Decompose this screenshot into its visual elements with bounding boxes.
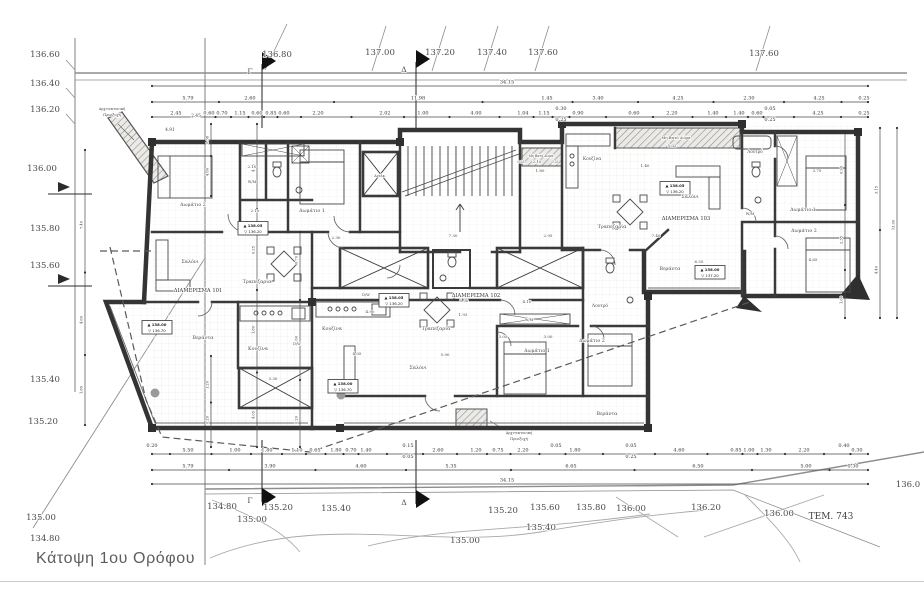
contour-label: 135.00 [26, 513, 56, 523]
plan-dim-label: 3.05 [499, 334, 508, 339]
dim-label: 1.04 [517, 111, 528, 117]
dim-label-vertical: 1.00 [840, 295, 844, 304]
contour-label: 135.60 [530, 503, 560, 513]
dim-label: 1.80 [261, 448, 272, 454]
section-flag-delta-top [416, 50, 430, 130]
dim-label: 0.25 [858, 96, 869, 102]
note-label: Αρχιτεκτονική [98, 107, 126, 111]
dim-label: 0.05 [625, 443, 636, 449]
room-label: Δωμάτιο 1 [299, 207, 325, 214]
level-marker: ▲ 138.00▽ 136.70 [328, 380, 358, 394]
level-lower-value: ▽ 136.20 [385, 301, 403, 306]
dim-label: 2.20 [517, 448, 528, 454]
dim-label: 1.30 [760, 448, 771, 454]
contour-label: 134.80 [30, 534, 60, 544]
dim-label: 2.20 [312, 111, 323, 117]
plan-dim-label: 4.90 [366, 309, 375, 314]
level-lower-value: ▽ 136.70 [148, 328, 166, 333]
contour-label: 136.40 [30, 79, 60, 89]
room-label: Βεράντα [660, 265, 682, 272]
room-label: Λουτρό [591, 304, 608, 309]
level-upper-value: ▲ 138.05 [666, 183, 685, 188]
dim-label: 0.60 [628, 111, 639, 117]
dim-label: 0.85 [730, 448, 741, 454]
level-upper-value: ▲ 138.05 [244, 223, 263, 228]
dim-label: 0.30 [847, 464, 858, 470]
dim-label: 0.30 [555, 106, 566, 112]
apartment-label: ΔΙΑΜΕΡΙΣΜΑ 103 [662, 216, 710, 222]
dim-label: 1.40 [360, 448, 371, 454]
dim-label: 1.80 [569, 448, 580, 454]
dim-label: 4.60 [355, 464, 366, 470]
level-upper-value: ▲ 138.05 [385, 295, 404, 300]
contour-label: 135.40 [30, 375, 60, 385]
contour-label: 135.00 [237, 515, 267, 525]
dim-label: 1.00 [417, 111, 428, 117]
room-label: W/M [248, 180, 257, 184]
dim-label: 2.60 [432, 448, 443, 454]
contour-label: 135.60 [30, 261, 60, 271]
dim-label-vertical: 0.20 [295, 415, 299, 424]
plan-dim-label: 1.80 [536, 168, 545, 173]
dim-label: 0.25 [764, 117, 775, 123]
dim-label: 1.15 [234, 111, 245, 117]
dim-label: 4.25 [672, 96, 683, 102]
plan-dim-label: 3.75 [813, 168, 822, 173]
dim-label: 0.65 [309, 448, 320, 454]
room-label: Μη Βατό Δώμα [661, 135, 691, 140]
dim-label: 1.10 [291, 448, 302, 454]
note-label: Αρχιτεκτονική [505, 431, 533, 435]
floor-plan-drawing: 34.155.792.6011.981.453.404.252.304.250.… [0, 0, 924, 597]
dim-label: 5.35 [445, 464, 456, 470]
dim-label: 0.60 [203, 111, 214, 117]
plan-dim-label: 4.91 [165, 128, 175, 133]
room-label: Σαλόνι [681, 193, 698, 200]
contour-label: 136.20 [691, 503, 721, 513]
dim-label: 1.40 [733, 111, 744, 117]
contour-label: 135.40 [526, 523, 556, 533]
contour-label: 136.0 [896, 480, 920, 490]
room-label: Τραπεζαρία [243, 278, 272, 285]
dim-label: 0.40 [838, 443, 849, 449]
dim-label: 6.65 [565, 464, 576, 470]
room-label: Κουζίνα [322, 325, 343, 332]
dim-label: 6.50 [692, 464, 703, 470]
contour-label: 137.00 [365, 48, 395, 58]
floor-plan-page: { "meta": {"title": "Κάτοψη 1ου Ορόφου"}… [0, 0, 924, 597]
level-marker: ▲ 138.05▽ 136.20 [238, 222, 268, 236]
contour-label: 136.00 [616, 504, 646, 514]
dim-label: 0.15 [402, 443, 413, 449]
room-label: Μη Βατό Δώμα [529, 154, 554, 158]
dim-label: 1.45 [541, 96, 552, 102]
dim-label: 0.20 [146, 443, 157, 449]
room-label: Δωμάτιο 2 [180, 201, 206, 208]
plan-dim-label: 1.40 [641, 163, 650, 168]
dim-label: 0.60 [278, 111, 289, 117]
room-label: Δωμάτιο 2 [579, 337, 605, 344]
contour-label: 137.40 [477, 48, 507, 58]
plan-dim-label: 0.25 [551, 160, 558, 164]
room-label: Βεράντα [193, 334, 215, 341]
dim-label: 5.79 [182, 96, 193, 102]
vdim-right-b: 3.154.40 [875, 127, 882, 319]
plan-dim-label: 3.30 [269, 376, 278, 381]
contour-label: 136.00 [764, 509, 794, 519]
contour-label: 137.60 [528, 48, 558, 58]
level-upper-value: ▲ 138.00 [701, 267, 720, 272]
dim-label: 0.25 [555, 117, 566, 123]
plan-dim-label: 1.93 [459, 312, 468, 317]
dim-label: 1.20 [470, 448, 481, 454]
dim-label: 0.90 [572, 111, 583, 117]
dim-label: 0.25 [858, 111, 869, 117]
plan-dim-label: 2.30 [332, 235, 341, 240]
section-flag-letter: Δ [401, 498, 407, 507]
dim-label: 4.25 [813, 96, 824, 102]
dim-label: 34.15 [500, 80, 514, 86]
dim-label: 2.02 [379, 111, 390, 117]
dim-label: 11.98 [411, 96, 425, 102]
contour-label: 137.20 [425, 48, 455, 58]
room-label: D/W [362, 293, 370, 297]
level-lower-value: ▽ 136.70 [334, 387, 352, 392]
dim-label-vertical: 0.90 [840, 165, 844, 174]
room-label: Δωμάτιο 2 [791, 227, 817, 234]
drawing-title: Κάτοψη 1ου Ορόφου [36, 550, 195, 568]
room-label: Ανελκ. [373, 174, 386, 178]
level-marker: ▲ 138.05▽ 136.20 [379, 294, 409, 308]
dim-label: 0.70 [216, 111, 227, 117]
plan-dim-label: 7.30 [449, 233, 458, 238]
plan-dim-label: 4.65 [809, 257, 818, 262]
dim-label: 0.85 [265, 111, 276, 117]
plan-dim-label: 2.95 [544, 233, 553, 238]
dim-label: 1.15 [538, 111, 549, 117]
dim-label-vertical: 1.80 [252, 325, 256, 334]
footer-divider [0, 581, 924, 582]
dim-label: 0.05 [764, 106, 775, 112]
contour-label: 136.80 [262, 50, 292, 60]
note-label: Προεξοχή [510, 437, 528, 441]
room-label: D/W [293, 342, 301, 346]
dim-label-vertical: 0.25 [252, 245, 256, 254]
top-dim-overall: 34.15 [151, 80, 869, 88]
dim-label-vertical: 1.80 [80, 385, 84, 394]
contour-label: 135.40 [321, 504, 351, 514]
plan-dim-label: 2.45 [191, 114, 201, 119]
dim-label: 4.60 [673, 448, 684, 454]
dim-label: 0.75 [492, 448, 503, 454]
contour-label: 135.20 [263, 503, 293, 513]
room-label: W/M [525, 318, 534, 322]
vdim-right-c: 13.90 [892, 127, 899, 319]
top-dim-row-3: 2.450.600.701.150.600.850.602.202.021.00… [151, 106, 870, 123]
dim-label: 0.25 [625, 454, 636, 460]
dim-label: 0.05 [402, 454, 413, 460]
dim-label: 0.60 [751, 111, 762, 117]
contour-label: 136.60 [30, 50, 60, 60]
section-flag-delta-bottom [416, 440, 430, 508]
dim-label-vertical: 4.60 [80, 315, 84, 324]
dim-label: 2.45 [170, 111, 181, 117]
dim-label-vertical: 13.90 [892, 219, 896, 230]
contour-label: 135.80 [30, 224, 60, 234]
dim-label: 1.00 [229, 448, 240, 454]
dim-label: 4.25 [812, 111, 823, 117]
dim-label: 3.90 [264, 464, 275, 470]
note-label: Προεξοχή [103, 113, 121, 117]
contour-label: 135.20 [28, 417, 58, 427]
plan-dim-label: 5.00 [460, 298, 469, 303]
level-lower-value: ▽ 136.20 [244, 229, 262, 234]
dim-label: 2.20 [666, 111, 677, 117]
bottom-dim-overall: 34.15 [151, 478, 869, 486]
dim-label-vertical: 1.20 [206, 380, 210, 389]
dim-label: 1.00 [743, 448, 754, 454]
dim-label: 0.30 [851, 448, 862, 454]
level-upper-value: ▲ 138.00 [148, 322, 167, 327]
dim-label-vertical: 4.05 [252, 410, 256, 419]
room-label: Δωμάτιο 1 [524, 347, 550, 354]
dim-label-vertical: 3.15 [875, 185, 879, 194]
dim-label: 0.05 [550, 443, 561, 449]
room-label: Δωμάτιο 1 [790, 206, 816, 213]
level-lower-value: ▽ 136.20 [666, 189, 684, 194]
dim-label: 5.00 [800, 464, 811, 470]
section-flag-letter: Δ [401, 65, 407, 74]
contour-label: 136.00 [27, 164, 57, 174]
plan-dim-label: 5.90 [441, 352, 450, 357]
contour-label: 135.20 [488, 506, 518, 516]
plan-dim-label: 4.10 [523, 299, 532, 304]
contour-label: 134.80 [207, 502, 237, 512]
dim-label-vertical: 4.40 [875, 265, 879, 274]
level-upper-value: ▲ 138.00 [334, 381, 353, 386]
dim-label: 1.80 [330, 448, 341, 454]
contour-label: 135.00 [450, 536, 480, 546]
dim-label: 5.50 [182, 448, 193, 454]
dim-label: 3.40 [592, 96, 603, 102]
plan-dim-label: 2.10 [251, 208, 260, 213]
room-label: Τραπεζαρία [422, 325, 451, 332]
dim-label-vertical: 0.20 [206, 415, 210, 424]
dim-label: 2.30 [743, 96, 754, 102]
section-flag-letter: Γ [247, 67, 252, 76]
dim-label-vertical: 4.60 [206, 167, 210, 176]
plan-dim-label: 7.40 [652, 233, 661, 238]
plan-dim-label: 6.55 [695, 259, 704, 264]
room-label: W/M [746, 212, 755, 216]
plan-dim-label: 2.10 [533, 159, 542, 164]
apartment-label: ΔΙΑΜΕΡΙΣΜΑ 101 [174, 288, 222, 294]
dim-label: 0.60 [251, 111, 262, 117]
contour-label: 137.60 [749, 49, 779, 59]
parcel-label: ΤΕΜ. 743 [809, 512, 854, 522]
dim-label: 34.15 [500, 478, 514, 484]
dim-label-vertical: 0.38 [206, 135, 210, 144]
dim-label: 5.79 [182, 464, 193, 470]
dim-label-vertical: 2.35 [840, 235, 844, 244]
room-label: Σαλόνι [181, 258, 198, 265]
plan-dim-label: 3.00 [544, 334, 553, 339]
bottom-dim-row-1: 0.205.501.001.801.100.651.800.701.400.15… [146, 443, 869, 460]
contour-label: 135.80 [576, 503, 606, 513]
dim-label: 1.40 [707, 111, 718, 117]
room-label: Τραπεζαρία [598, 223, 627, 230]
level-marker: ▲ 138.00▽ 137.20 [695, 266, 725, 280]
contour-label: 136.20 [30, 105, 60, 115]
section-flag-letter: Γ [247, 496, 252, 505]
dim-label-vertical: 0.70 [295, 255, 299, 264]
dim-label: 4.00 [470, 111, 481, 117]
dim-label: 0.70 [345, 448, 356, 454]
room-label: Σαλόνι [409, 364, 426, 371]
bottom-dim-row-2: 5.793.904.605.356.656.505.000.30 [151, 464, 869, 472]
vdim-left-site: 7.404.601.80 [80, 149, 87, 426]
level-lower-value: ▽ 137.20 [701, 273, 719, 278]
room-label: Λουτρό [746, 149, 763, 154]
plan-dim-label: 4.05 [353, 351, 362, 356]
room-label: Κουζίνα [583, 156, 601, 162]
level-marker: ▲ 138.00▽ 136.70 [142, 321, 172, 335]
dim-label: 2.60 [244, 96, 255, 102]
level-marker: ▲ 138.05▽ 136.20 [660, 182, 690, 196]
dim-label: 2.20 [798, 448, 809, 454]
dim-label-vertical: 7.40 [80, 220, 84, 229]
room-label: Βεράντα [597, 410, 619, 417]
room-label: Κουζίνα [248, 345, 269, 352]
plan-dim-label: 0.25 [517, 160, 524, 164]
top-dim-row-2: 5.792.6011.981.453.404.252.304.250.25 [151, 96, 870, 104]
plan-dim-label: 2.10 [248, 164, 257, 169]
plan-dim-label: 5.02 [668, 143, 677, 148]
